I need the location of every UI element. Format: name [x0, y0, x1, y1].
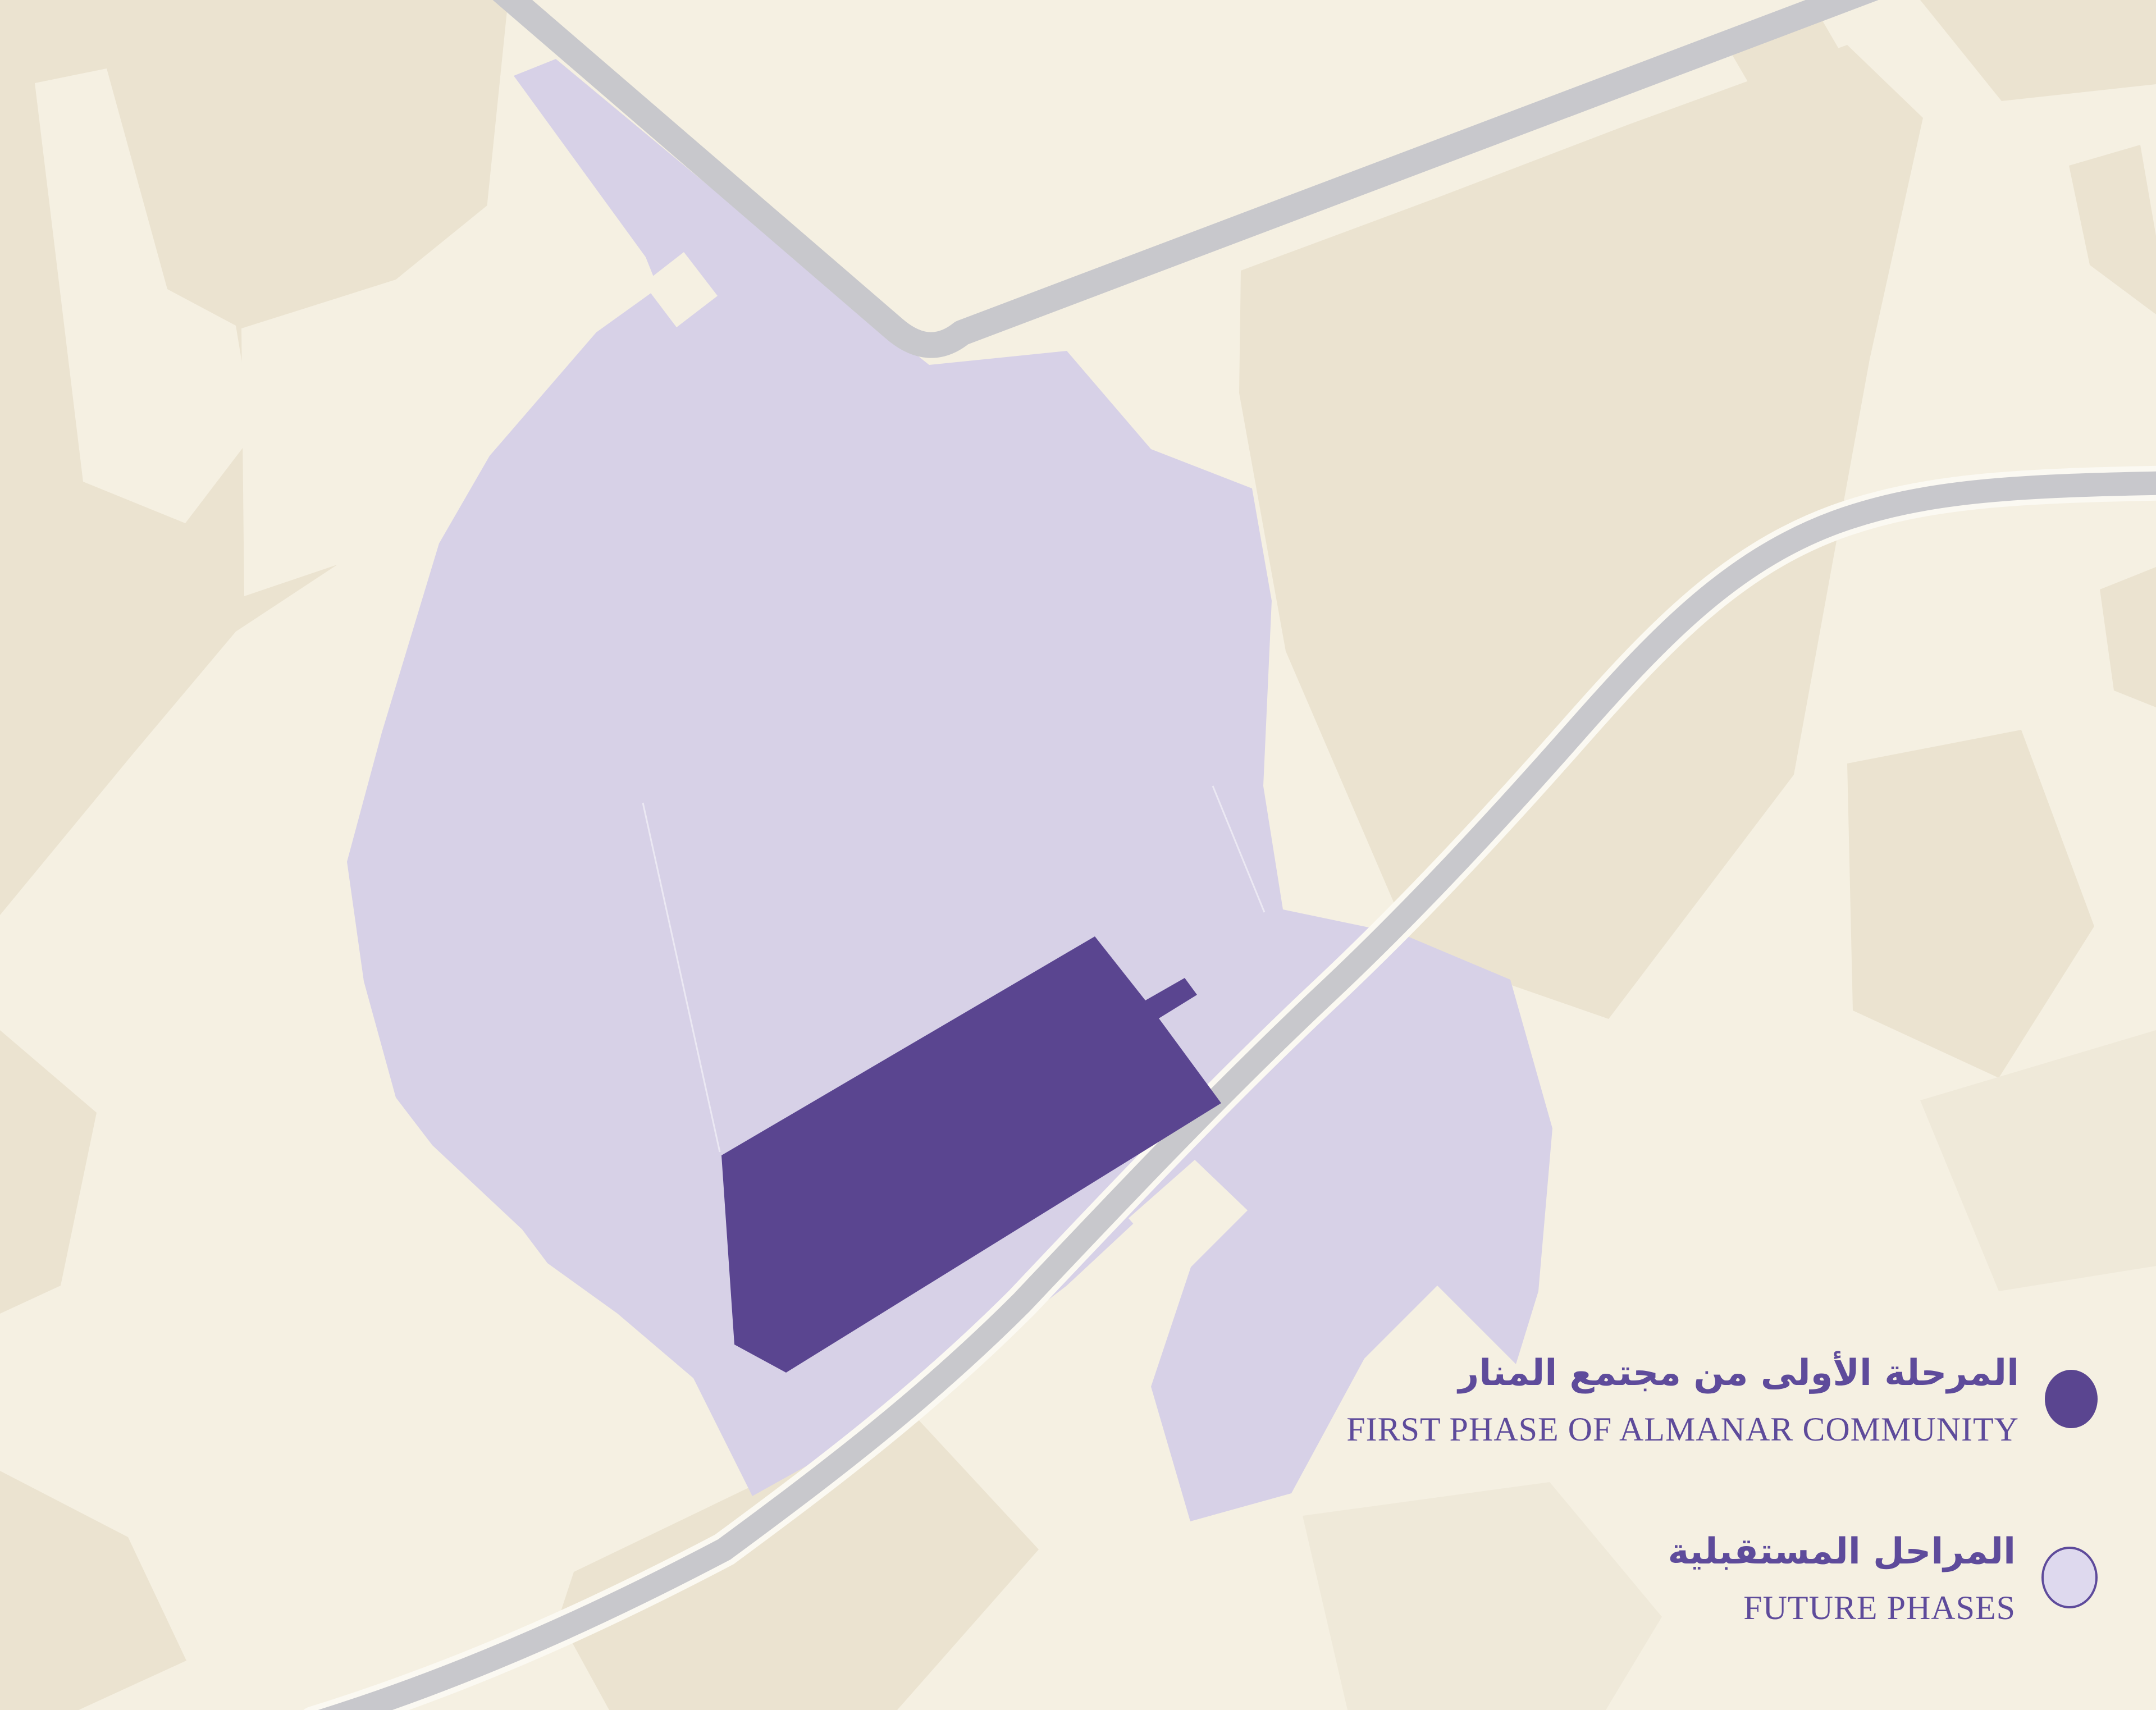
phasing-map-page: المرحلة الأولى من مجتمع المنار FIRST PHA… — [0, 0, 2156, 1710]
first-phase-label-english: FIRST PHASE OF ALMANAR COMMUNITY — [1346, 1403, 2019, 1455]
future-phases-swatch — [2041, 1547, 2098, 1608]
future-phases-label-arabic: المراحل المستقبلية — [1668, 1521, 2016, 1582]
future-phases-label-english: FUTURE PHASES — [1743, 1582, 2016, 1634]
first-phase-label-arabic: المرحلة الأولى من مجتمع المنار — [1458, 1343, 2019, 1403]
legend-first-phase-labels: المرحلة الأولى من مجتمع المنار FIRST PHA… — [1346, 1343, 2019, 1455]
legend: المرحلة الأولى من مجتمع المنار FIRST PHA… — [1346, 1343, 2098, 1634]
legend-item-first-phase: المرحلة الأولى من مجتمع المنار FIRST PHA… — [1346, 1343, 2098, 1455]
legend-future-phases-labels: المراحل المستقبلية FUTURE PHASES — [1668, 1521, 2016, 1634]
legend-item-future-phases: المراحل المستقبلية FUTURE PHASES — [1346, 1521, 2098, 1634]
first-phase-swatch — [2045, 1370, 2098, 1428]
